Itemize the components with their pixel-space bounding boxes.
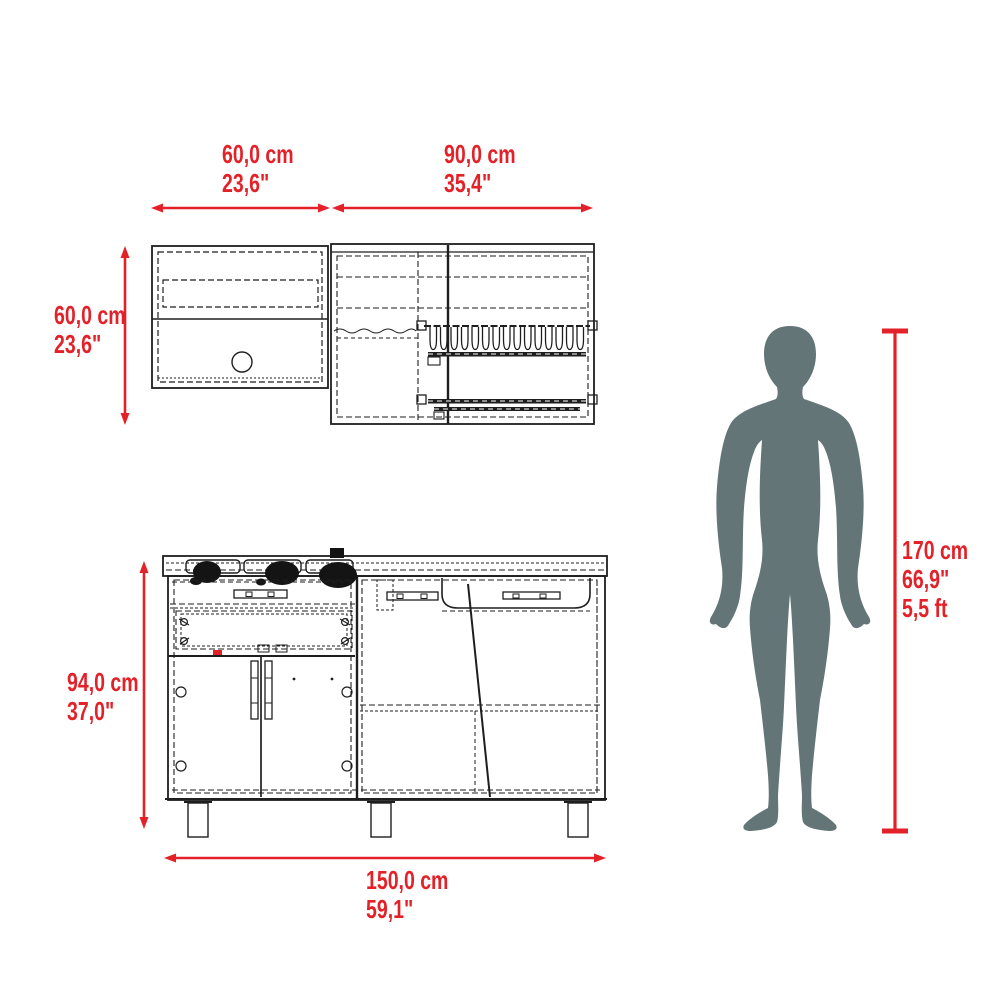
value-inch: 35,4" [444,169,516,198]
sink-bowl [442,578,590,608]
value-inch: 37,0" [67,697,139,726]
label-upper-height: 60,0 cm 23,6" [54,301,126,359]
left-doors [174,580,352,797]
drain-line [468,584,490,797]
label-base-width: 150,0 cm 59,1" [366,866,448,924]
cabinet-legs [184,802,592,837]
left-drawer [168,590,355,657]
door-handle [251,661,258,719]
dish-rack-upper [417,321,597,365]
drawer-handle [234,590,287,598]
cable-hole [232,352,252,372]
dimension-diagram: 60,0 cm 23,6" 90,0 cm 35,4" 60,0 cm 23,6… [0,0,1000,1000]
value-inch: 23,6" [222,169,294,198]
label-person-height: 170 cm 66,9" 5,5 ft [902,536,968,623]
value-cm: 170 cm [902,536,968,565]
burner [265,561,299,585]
value-inch: 66,9" [902,565,968,594]
person-silhouette-icon [710,326,870,831]
label-upper-right-width: 90,0 cm 35,4" [444,140,516,198]
value-inch: 23,6" [54,330,126,359]
sink-section [360,578,600,797]
value-cm: 60,0 cm [222,140,294,169]
label-base-height: 94,0 cm 37,0" [67,668,139,726]
drawer-slide-hardware [179,619,350,645]
value-cm: 150,0 cm [366,866,448,895]
upper-cabinet-90 [331,244,597,424]
value-cm: 94,0 cm [67,668,139,697]
upper-cabinet-60 [152,246,328,388]
cooktop [172,548,357,588]
value-ft: 5,5 ft [902,594,968,623]
dish-rack-lower [417,395,597,419]
base-cabinet [163,548,607,837]
label-upper-left-width: 60,0 cm 23,6" [222,140,294,198]
value-inch: 59,1" [366,895,448,924]
hinges [176,687,352,771]
door-handle [265,661,272,719]
drawer-handle [387,592,438,600]
value-cm: 90,0 cm [444,140,516,169]
sink-handle [503,592,560,599]
shelf-squiggle [334,329,416,333]
value-cm: 60,0 cm [54,301,126,330]
